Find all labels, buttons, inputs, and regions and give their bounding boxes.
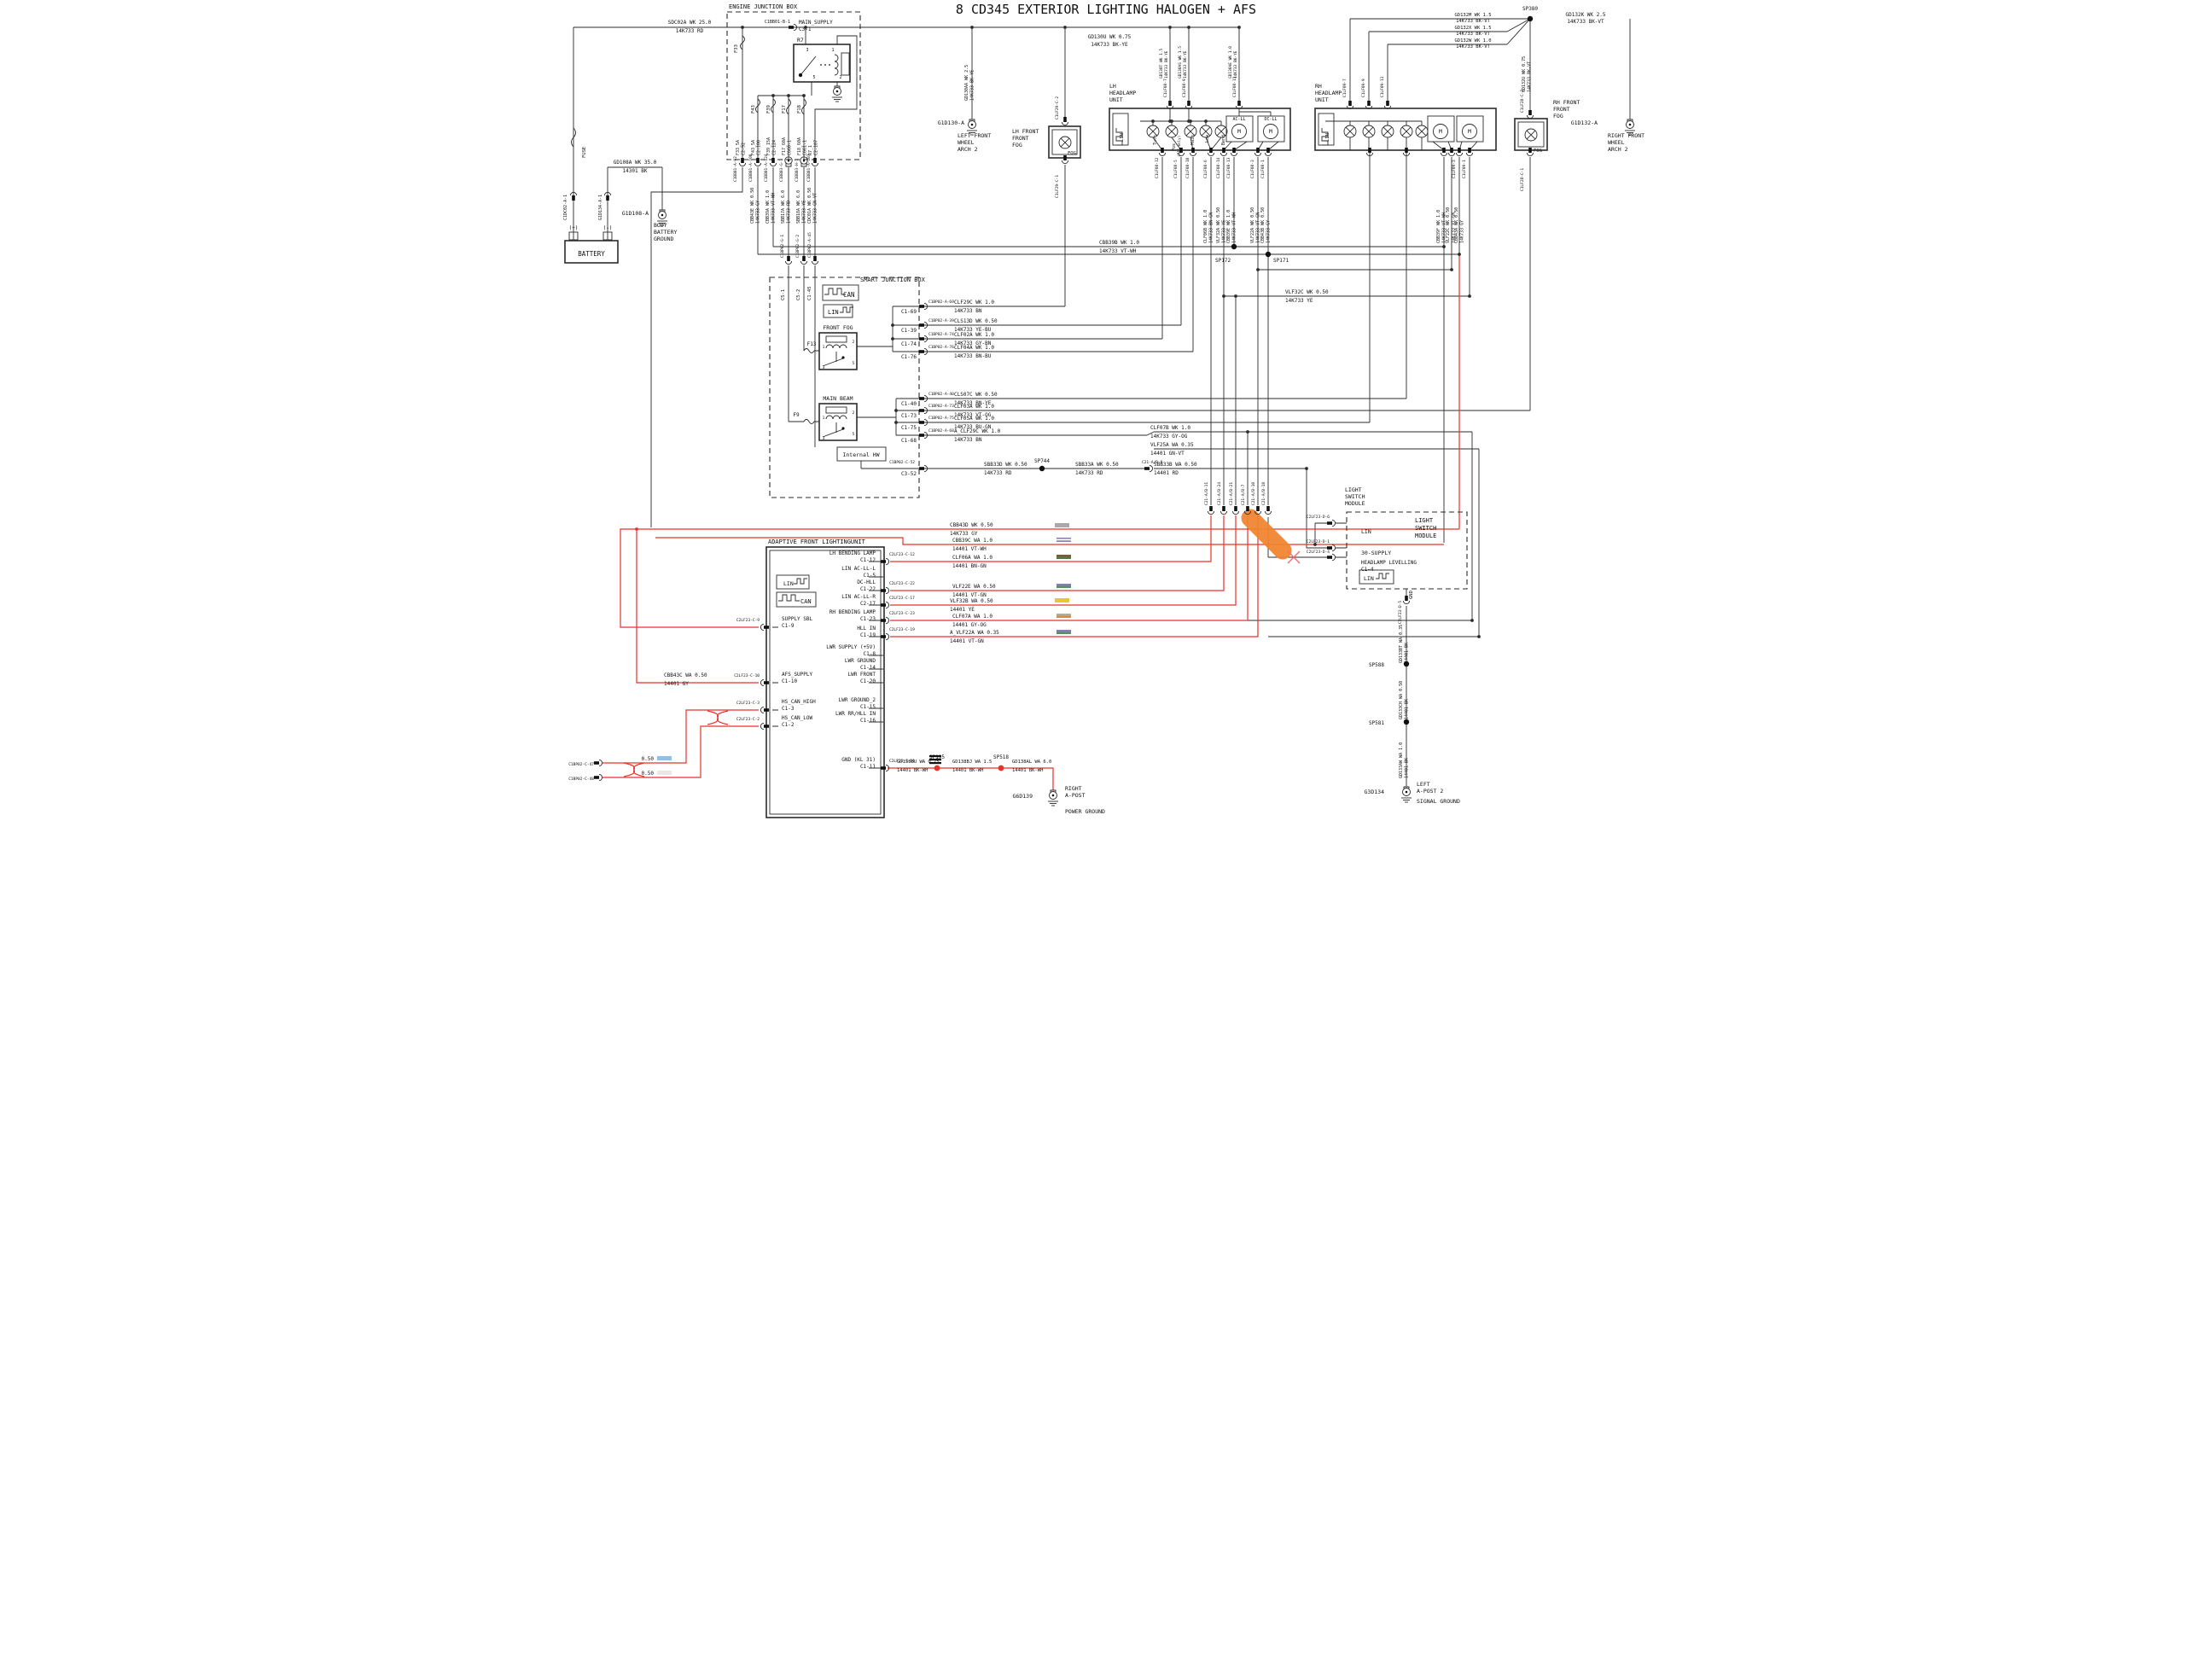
label-f18: F18 xyxy=(797,105,802,114)
label-cb_h1: C1BB03-H-1 xyxy=(795,159,800,182)
wire-swatch-avlf22a xyxy=(1057,630,1071,634)
label-cl08_10: C1LF08-10 xyxy=(1185,157,1190,178)
connector-icon xyxy=(1365,101,1371,109)
junction-dot xyxy=(1187,119,1190,123)
junction-dot xyxy=(1305,467,1308,470)
label-p1: 1 xyxy=(823,345,825,350)
label-w_sbb33d: SBB33D WK 0.5014K733 RD xyxy=(984,462,1027,476)
label-w_gd130u: GD130U WK 0.7514K733 BK-YE xyxy=(1088,34,1132,48)
label-lin: LIN xyxy=(1361,528,1371,535)
label-w_gd138al: GD138AL WA 6.014401 BK-WH xyxy=(1012,760,1051,773)
junction-dot xyxy=(891,337,894,341)
label-lin: LIN xyxy=(1364,575,1374,582)
label-cp_g1: C1BP02-G-1 xyxy=(780,235,785,258)
junction-dot xyxy=(1246,430,1249,434)
connector-icon xyxy=(1220,506,1226,515)
wire-swatch-cbb39c xyxy=(1057,538,1071,542)
label-w_cbb39b: CBB39B WK 1.014K733 VT-WH xyxy=(1099,240,1139,254)
label-cl09_1: C1LF09-1 xyxy=(1462,160,1467,178)
label-w_sbb33a: SBB33A WK 0.5014K733 RD xyxy=(1075,462,1119,476)
label-w_gd132m: GD132M WK 1.514K733 BK-VT xyxy=(1454,13,1491,24)
connector-icon xyxy=(760,723,769,729)
label-fusev: FUSE xyxy=(582,147,587,158)
bulb-icon xyxy=(1059,137,1071,148)
label-cl08_3: C1LF08-3 xyxy=(1250,160,1255,178)
label-lin: LIN xyxy=(828,309,839,316)
label-pwr_gnd: POWER GROUND xyxy=(1065,808,1105,815)
label-r7r: R7_1C2-107 xyxy=(808,140,819,155)
label-f43r: F43_5AC2-100 xyxy=(751,140,762,155)
junction-dot xyxy=(1204,119,1208,123)
label-p_canl: HS_CAN_LOWC1-2 xyxy=(782,715,813,728)
connector-icon xyxy=(1254,148,1260,156)
ground-icon xyxy=(1048,790,1058,806)
label-w_clf04a: CLF04A WK 1.014K733 BN-BU xyxy=(954,345,994,359)
label-hl_lev: HEADLAMP LEVELLINGC1-4 xyxy=(1361,560,1417,573)
label-c21_10: C21-A/B-10 xyxy=(1251,482,1256,505)
label-body_gnd: BODYBATTERYGROUND xyxy=(654,222,677,242)
label-cl08_1: C1LF08-1 xyxy=(1260,160,1266,178)
connector-icon xyxy=(1144,465,1153,471)
label-w_cbb39a: CBB39A WK 1.014K733 VT-WH xyxy=(765,190,777,224)
label-c1dc02: C1DC02-A-1 xyxy=(563,195,568,220)
label-p_lwrs: LWR SUPPLY (+5V)C1-8 xyxy=(826,644,876,657)
label-r7: R7 xyxy=(797,37,804,44)
junction-dot xyxy=(1168,119,1172,123)
bulb-icon xyxy=(1344,125,1356,137)
ground-icon xyxy=(832,86,842,102)
label-m: M xyxy=(1468,128,1471,135)
label-fog: FOG xyxy=(1068,151,1076,156)
label-cp_a39: C1BP02-A-39 xyxy=(928,318,954,323)
label-w_gd130aa: GD130AA WK 2.514K733 BK-YE xyxy=(964,65,975,101)
wiring-diagram-canvas: { "title": "8 CD345 EXTERIOR LIGHTING HA… xyxy=(553,0,1659,829)
label-p_gnd: GND (KL 31)C1-11 xyxy=(841,757,876,770)
label-cp_g2: C1BP02-G-2 xyxy=(795,235,800,258)
label-sp581: SP581 xyxy=(1369,720,1384,726)
label-dcll: DC-LL xyxy=(1264,117,1277,122)
label-w_gd132w: GD132W WK 1.014K733 BK-VT xyxy=(1454,38,1491,49)
label-c21_18: C21-A/B-18 xyxy=(1261,482,1266,505)
label-cp_c47: C1BP02-C-47 xyxy=(568,762,594,767)
label-lin: LIN xyxy=(1325,133,1330,142)
label-cc10: C2LF23-C-10 xyxy=(734,673,760,678)
label-c21_7: C21-A/B-7 xyxy=(1241,484,1246,505)
label-c3_52: C3-52 xyxy=(901,471,917,477)
label-half50: 0.50 xyxy=(642,771,655,777)
label-cp_c52: C1BP02-C-52 xyxy=(889,460,915,465)
junction-dot xyxy=(1470,619,1474,622)
label-fog: FOG xyxy=(1534,148,1542,154)
label-gnd: GND xyxy=(1409,591,1414,599)
wire-swatch-vlf32b xyxy=(1055,598,1069,602)
label-cb_b1: C1BB01-B-1 xyxy=(765,20,790,25)
label-cb_g1: C1BB03-G-1 xyxy=(779,159,784,182)
junction-dot xyxy=(771,94,775,97)
label-cl08_14: C1LF08-14 xyxy=(1216,157,1221,178)
label-acll: AC-LL xyxy=(1232,117,1245,122)
label-w_sbb17a: SBB17A WK 6.014K733 RD xyxy=(781,190,792,224)
label-w_sdc02a: SDC02A WK 25.014K733 RD xyxy=(668,20,712,34)
label-w_cdc01a: CDC01A WK 0.5014K733 GN-VT xyxy=(807,188,818,224)
label-w_vlf22a: VLF22A WK 0.5014K733 VT-GN xyxy=(1250,207,1261,243)
label-c21_21: C21-A/B-21 xyxy=(1229,482,1234,505)
label-minus: (-) xyxy=(603,225,613,231)
label-w_cbb43e: CBB43E WK 0.5014K733 GY xyxy=(750,188,761,224)
junction-dot xyxy=(1256,268,1260,271)
label-g1d132: G1D132-A xyxy=(1571,119,1598,126)
connector-icon xyxy=(760,707,769,713)
label-cl09_11: C1LF09-11 xyxy=(1380,76,1385,97)
label-cd6: C2LF23-D-6 xyxy=(1307,515,1330,520)
label-c1_39: C1-39 xyxy=(901,328,917,334)
label-c5_1: C5-1 xyxy=(781,289,786,300)
label-p_lwrrr: LWR RR/HLL INC1-16 xyxy=(835,711,876,724)
label-sp172: SP172 xyxy=(1215,258,1231,264)
junction-dot xyxy=(802,94,806,97)
junction-dot xyxy=(787,94,790,97)
wire-swatch-tp2 xyxy=(657,771,672,775)
connector-icon xyxy=(1448,148,1454,156)
label-p2: 2 xyxy=(839,75,841,80)
label-p5: 5 xyxy=(812,75,815,80)
label-lin: LIN xyxy=(1120,133,1125,142)
label-cc19: C2LF23-C-19 xyxy=(889,627,915,632)
label-cl29_2: C1LF29-C-2 xyxy=(1055,96,1060,119)
label-g3d134: G3D134 xyxy=(1365,789,1385,795)
label-cl08_5: C1LF08-5 xyxy=(1173,160,1179,178)
label-w_gd138bu: GD138BU WA 0.7514401 BK-WH xyxy=(897,760,940,773)
label-c1_68: C1-68 xyxy=(901,438,917,444)
label-w_gd130ae: GD130AE WK 1.014K733 BK-YE xyxy=(1228,46,1238,79)
label-cc3: C2LF23-C-3 xyxy=(736,701,760,706)
label-lh_unit: LHHEADLAMPUNIT xyxy=(1109,83,1136,103)
label-cl28_1: C1LF28-C-1 xyxy=(1520,168,1525,191)
junction-dot xyxy=(804,26,807,29)
splice-dot xyxy=(1039,466,1045,471)
connector-icon xyxy=(1527,148,1533,156)
connector-icon xyxy=(760,624,769,630)
label-lf_arch: LEFT FRONTWHEELARCH 2 xyxy=(958,132,991,153)
label-cp_a74: C1BP02-A-74 xyxy=(928,332,954,337)
label-w_gd132u: GD132U WK 0.7514K733 BK-VT xyxy=(1522,56,1533,92)
connector-icon xyxy=(1159,148,1165,156)
label-lsm: LIGHTSWITCHMODULE xyxy=(1415,517,1436,539)
connector-icon xyxy=(1220,148,1226,156)
label-c1_40: C1-40 xyxy=(901,401,917,407)
label-p_lwrg: LWR GROUNDC1-14 xyxy=(845,658,876,671)
connector-icon xyxy=(812,158,818,166)
label-cp_a40: C1BP02-A-40 xyxy=(928,392,954,397)
label-turn: Turn xyxy=(1153,135,1158,145)
label-bend: Bend xyxy=(1221,135,1226,145)
fuse-icon xyxy=(804,349,814,353)
junction-dot xyxy=(894,421,898,424)
connector-icon xyxy=(594,774,602,780)
label-sp588: SP588 xyxy=(1369,662,1384,668)
label-internal_hw: Internal HW xyxy=(842,451,879,458)
label-w_gd132k: GD132K WK 2.514K733 BK-VT xyxy=(1566,12,1606,25)
label-p_linr: LIN AC-LL-RC2-17 xyxy=(841,594,876,607)
splice-dot xyxy=(1528,16,1533,21)
connector-icon xyxy=(1062,117,1068,125)
label-cd5: C2LF23-D-5 xyxy=(1398,601,1403,624)
connector-icon xyxy=(1208,148,1214,156)
bulb-icon xyxy=(1525,129,1537,141)
splice-dot xyxy=(1266,252,1271,257)
label-g1d130: G1D130-A xyxy=(938,119,964,126)
splice-dot xyxy=(1404,719,1409,725)
label-p3: 3 xyxy=(823,436,825,441)
junction-dot xyxy=(891,323,894,327)
label-w_sbb18a: SBB18A WK 6.014K733 YE xyxy=(796,190,807,224)
label-cl08_12: C1LF08-12 xyxy=(1155,157,1160,178)
label-cp_a68: C1BP02-A-68 xyxy=(928,428,954,434)
label-cb_a100: C1BB01-A-100 xyxy=(748,154,754,182)
junction-dot xyxy=(741,26,744,29)
label-g1d108: G1D108-A xyxy=(622,210,649,217)
label-lin: LIN xyxy=(783,580,794,587)
connector-icon xyxy=(1327,554,1336,560)
label-p5: 5 xyxy=(853,432,855,437)
label-cc23: C2LF23-C-23 xyxy=(889,611,915,616)
label-p_sbl: SUPPLY SBLC1-9 xyxy=(782,616,813,629)
connector-icon xyxy=(770,158,776,166)
label-cc9: C2LF23-C-9 xyxy=(736,618,760,623)
label-f18r: F18_60AC661-1 xyxy=(797,137,808,155)
label-cl08_7: C1LF08-7 xyxy=(1163,79,1168,97)
label-w_vlf25a: VLF25A WA 0.3514401 GN-VT xyxy=(1150,442,1194,457)
label-r_apost: RIGHTA-POST xyxy=(1065,785,1086,799)
connector-icon xyxy=(1232,506,1238,515)
label-cl08_11: C1LF08-11 xyxy=(1232,76,1237,97)
junction-dot xyxy=(1187,26,1190,29)
label-cl08_13: C1LF08-13 xyxy=(1226,157,1231,178)
label-w_clf06b: CLF06B WK 1.014K733 BN-GN xyxy=(1203,210,1214,243)
connector-icon xyxy=(881,558,889,564)
connector-icon xyxy=(1384,101,1390,109)
label-cl09_9: C1LF09-9 xyxy=(1361,79,1366,97)
label-w_gd130t: GD130T WK 1.514K733 BK-YE xyxy=(1159,48,1169,79)
connector-icon xyxy=(1185,101,1191,109)
label-p_rhbend: RH BENDING LAMPC1-23 xyxy=(829,609,876,622)
label-cl29_1: C1LF29-C-1 xyxy=(1055,175,1060,198)
label-c1_76: C1-76 xyxy=(901,354,917,360)
label-c1_69: C1-69 xyxy=(901,309,917,315)
label-c1_75: C1-75 xyxy=(901,425,917,431)
label-rh_fog: RH FRONTFRONTFOG xyxy=(1553,99,1580,119)
label-cc22: C2LF23-C-22 xyxy=(889,581,915,586)
junction-dot xyxy=(1237,26,1241,29)
label-plus: (+) xyxy=(569,225,579,231)
connector-icon xyxy=(1208,506,1214,515)
label-w_cbb43b: CBB43B WK 0.5014K733 GY xyxy=(1260,207,1272,243)
label-w_cbb39e: CBB39E WK 1.014K733 VT-WH xyxy=(1226,210,1237,243)
connector-icon xyxy=(785,256,791,265)
label-supply30: 30-SUPPLY xyxy=(1361,550,1391,556)
bulb-icon xyxy=(1382,125,1394,137)
bus-symbol-waves xyxy=(778,128,1389,601)
label-ejb: ENGINE JUNCTION BOX xyxy=(729,3,798,10)
connector-icon xyxy=(594,760,602,765)
label-front_fog: FRONT FOG xyxy=(823,324,853,331)
label-cl09_3: C1LF09-3 xyxy=(1452,160,1457,178)
label-c1_73: C1-73 xyxy=(901,413,917,419)
label-p3: 3 xyxy=(823,365,825,370)
label-cc12: C2LF23-C-12 xyxy=(889,552,915,557)
label-p2: 2 xyxy=(853,410,855,416)
label-p_lwrf: LWR FRONTC1-20 xyxy=(847,672,876,684)
wire-swatch-cbb43d xyxy=(1055,523,1069,527)
connector-icon xyxy=(1456,148,1462,156)
connector-icon xyxy=(812,256,818,265)
label-cl28_2: C1LF28-C-2 xyxy=(1520,90,1525,113)
label-sp380: SP380 xyxy=(1522,6,1538,12)
label-p5: 5 xyxy=(853,361,855,366)
label-c21_11: C21-A/B-11 xyxy=(1204,482,1209,505)
label-m: M xyxy=(1439,128,1442,135)
label-main_supply: MAIN_SUPPLYC3-1 xyxy=(799,20,833,32)
label-cp_c48: C1BP02-C-48 xyxy=(568,777,594,782)
label-w_gd133ch: GD133CH WA 0.5014401 BK xyxy=(1399,681,1410,719)
junction-dot xyxy=(1442,245,1446,248)
label-m: M xyxy=(1237,128,1241,135)
label-c1_45: C1-45 xyxy=(807,286,812,300)
bulb-icon xyxy=(1400,125,1412,137)
connector-icon xyxy=(1265,506,1271,515)
connector-icon xyxy=(1347,101,1353,109)
label-w_vlf32c: VLF32C WK 0.5014K733 YE xyxy=(1285,289,1329,304)
bulb-icon xyxy=(1416,125,1428,137)
label-cp_a69: C1BP02-A-69 xyxy=(928,300,954,305)
label-rh_unit: RHHEADLAMPUNIT xyxy=(1315,83,1342,103)
connector-icon xyxy=(1527,110,1533,119)
label-sp171: SP171 xyxy=(1273,258,1289,264)
label-main: Main xyxy=(1190,135,1196,145)
label-w_cbb43c: CBB43C WA 0.5014401 GY xyxy=(664,672,707,687)
junction-dot xyxy=(1151,119,1155,123)
label-p1: 1 xyxy=(831,48,834,53)
junction-dot xyxy=(1458,253,1461,256)
label-p1: 1 xyxy=(823,416,825,421)
label-f13: F13 xyxy=(807,341,817,347)
main-beam-relay-box xyxy=(819,404,857,440)
junction-dot xyxy=(894,409,898,412)
junction-dot xyxy=(1168,26,1172,29)
label-w_vlf32a: VLF32A WK 0.5014K733 YE xyxy=(1216,207,1227,243)
wire-swatch-clf07a xyxy=(1057,614,1071,618)
label-can: CAN xyxy=(800,598,812,605)
label-c21_24: C21-A/B-24 xyxy=(1217,482,1222,505)
junction-dot xyxy=(1313,543,1317,546)
wire-swatch-tp1 xyxy=(657,756,672,760)
label-c1_74: C1-74 xyxy=(901,341,917,347)
junction-dot xyxy=(1063,26,1067,29)
label-g1d134: G1D134-A-1 xyxy=(598,195,603,220)
fuse-icon xyxy=(804,420,814,424)
label-sp518: SP518 xyxy=(993,754,1009,760)
junction-dot xyxy=(1222,294,1225,298)
splice-dot xyxy=(1231,244,1237,249)
label-lsm: LIGHTSWITCHMODULE xyxy=(1345,486,1365,507)
junction-dot xyxy=(970,26,974,29)
label-p_dchll: DC-HLLC1-22 xyxy=(857,579,876,592)
connector-icon xyxy=(739,158,745,166)
label-w_clf29c: CLF29C WK 1.014K733 BN xyxy=(954,300,994,314)
label-w_sbb33b: SBB33B WA 0.5014401 RD xyxy=(1154,462,1197,476)
label-w_gd133bt: GD133BT WA 0.3514401 BK xyxy=(1399,625,1410,663)
label-cb_a92: C1BB01-A-92 xyxy=(733,156,738,182)
label-f17r: F17_60AC660-1 xyxy=(782,137,793,155)
label-w_gd108a: GD108A WK 35.014301 BK xyxy=(614,160,657,174)
label-f17: F17 xyxy=(782,105,787,114)
engine-junction-box xyxy=(727,12,860,160)
label-cc17: C2LF23-C-17 xyxy=(889,596,915,601)
label-cp_a76: C1BP02-A-76 xyxy=(928,345,954,350)
junction-dot xyxy=(1450,268,1453,271)
splice-dot-red xyxy=(998,765,1004,771)
label-sp744: SP744 xyxy=(1034,458,1050,464)
label-p_hll: HLL INC1-19 xyxy=(857,626,876,638)
label-m: M xyxy=(1269,128,1272,135)
splice-dot xyxy=(1404,661,1409,667)
label-p3: 3 xyxy=(806,48,808,53)
junction-dot xyxy=(1468,294,1471,298)
connector-icon xyxy=(800,256,806,265)
label-cb_a107: C1BB01-A-107 xyxy=(806,154,812,182)
label-rf_arch: RIGHT FRONTWHEELARCH 2 xyxy=(1608,132,1644,153)
label-cp_a75: C1BP02-A-75 xyxy=(928,416,954,421)
r7-resistor xyxy=(841,53,849,75)
connector-icon xyxy=(760,679,769,685)
label-w_aclf29c: A_CLF29C WK 1.014K733 BN xyxy=(954,428,1001,443)
label-f39r: F39_15AC2-124 xyxy=(766,137,777,155)
label-p_lhbend: LH BENDING LAMPC1-12 xyxy=(829,550,876,563)
splice-dot-red xyxy=(934,765,940,771)
label-p_canh: HS_CAN_HIGHC1-3 xyxy=(782,699,816,712)
label-c5_2: C5-2 xyxy=(796,289,801,300)
connector-icon xyxy=(1466,148,1472,156)
label-lapost: LEFTA-POST 2 xyxy=(1417,781,1443,795)
label-cd4: C2LF23-D-4 xyxy=(1307,550,1330,555)
front-fog-relay-box xyxy=(819,333,857,370)
ground-icon xyxy=(1401,787,1412,802)
label-f33r: F33_5AC2-92 xyxy=(736,140,747,155)
label-battery: BATTERY xyxy=(578,250,605,258)
bulb-icon xyxy=(1363,125,1375,137)
label-p_afs: AFS_SUPPLYC1-10 xyxy=(782,672,813,684)
label-sp195: SP195 xyxy=(929,754,945,760)
label-cp_a45: C1BP02-A-45 xyxy=(807,232,812,258)
label-pos345: (345 only) xyxy=(1177,136,1181,157)
label-g6d139: G6D139 xyxy=(1013,793,1033,800)
label-f9: F9 xyxy=(793,412,800,418)
label-p_linl: LIN AC-LL-LC1-5 xyxy=(841,566,876,579)
label-cl08_9: C1LF08-9 xyxy=(1182,79,1187,97)
schematic-page: { "title": "8 CD345 EXTERIOR LIGHTING HA… xyxy=(553,0,1659,829)
label-w_clf07b: CLF07B WK 1.014K733 GY-OG xyxy=(1150,425,1190,439)
twisted-pair-icon xyxy=(707,711,728,725)
label-sjb: SMART JUNCTION BOX xyxy=(860,276,926,283)
label-p2: 2 xyxy=(853,340,855,345)
wire-swatch-vlf22e xyxy=(1057,584,1071,588)
connector-icon xyxy=(1190,148,1196,156)
label-cd1: C2LF23-D-1 xyxy=(1307,539,1330,544)
label-cl09_7: C1LF09-7 xyxy=(1342,79,1348,97)
label-main_beam: MAIN BEAM xyxy=(823,395,853,402)
label-afl: ADAPTIVE FRONT LIGHTINGUNIT xyxy=(768,538,866,545)
junction-dot xyxy=(1477,635,1481,638)
